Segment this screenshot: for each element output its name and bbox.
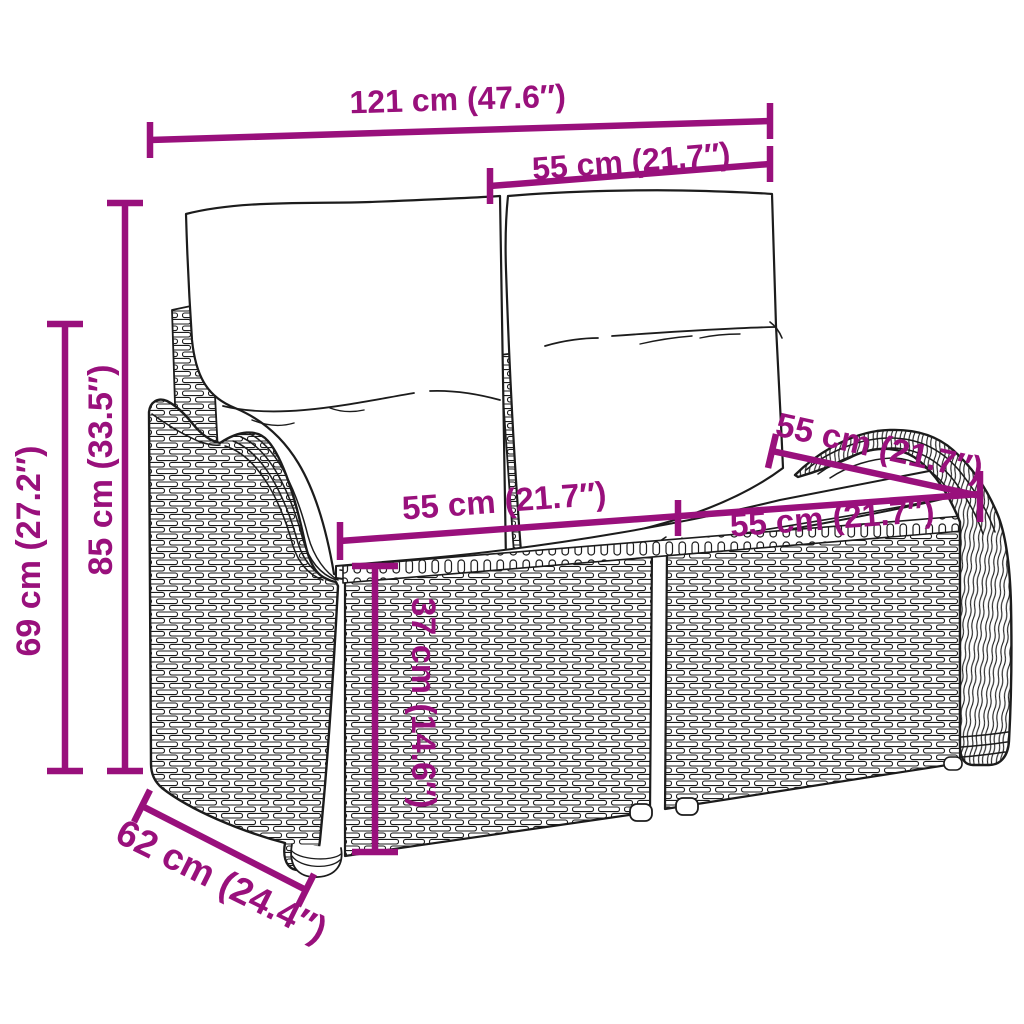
dim-armrest-height	[47, 324, 83, 771]
label-seat-height: 37 cm (14.6″)	[404, 598, 442, 809]
label-total-width: 121 cm (47.6″)	[349, 78, 566, 121]
label-armrest-height: 69 cm (27.2″)	[10, 446, 48, 657]
label-total-height: 85 cm (33.5″)	[82, 365, 120, 576]
diagram-page: 121 cm (47.6″) 55 cm (21.7″) 85 cm (33.5…	[0, 0, 1024, 1024]
bench-dimension-diagram: 121 cm (47.6″) 55 cm (21.7″) 85 cm (33.5…	[0, 0, 1024, 1024]
bench-foot	[944, 757, 962, 770]
label-backrest-width: 55 cm (21.7″)	[531, 135, 732, 186]
armrest-left-foot	[291, 844, 341, 877]
bench-illustration	[149, 190, 1011, 877]
bench-foot	[630, 804, 652, 821]
bench-foot	[676, 798, 698, 815]
